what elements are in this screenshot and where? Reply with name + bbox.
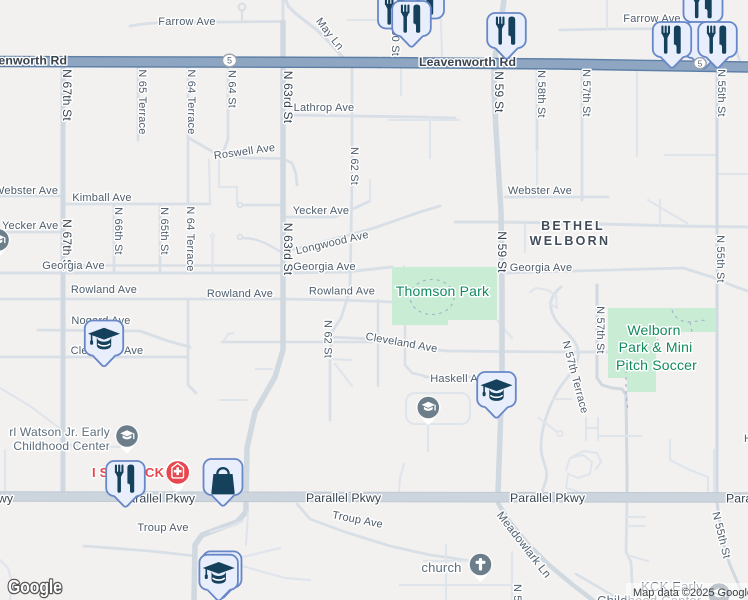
- svg-text:Georgia Ave: Georgia Ave: [42, 260, 105, 272]
- svg-text:5: 5: [698, 58, 703, 68]
- svg-text:Pitch Soccer: Pitch Soccer: [616, 357, 697, 373]
- svg-text:N 65th St: N 65th St: [158, 207, 170, 255]
- svg-text:N 55th St: N 55th St: [714, 235, 726, 283]
- svg-text:church: church: [421, 560, 461, 575]
- svg-text:WELBORN: WELBORN: [530, 234, 611, 248]
- svg-text:Kimball Ave: Kimball Ave: [72, 192, 131, 204]
- svg-text:Webster Ave: Webster Ave: [0, 185, 58, 197]
- svg-text:N 64 Terrace: N 64 Terrace: [184, 206, 196, 271]
- svg-text:N 58th St: N 58th St: [535, 70, 547, 118]
- svg-text:N 58: N 58: [511, 584, 523, 600]
- svg-text:Map data ©2025 Google: Map data ©2025 Google: [633, 587, 748, 599]
- svg-text:N 66th St: N 66th St: [112, 207, 124, 255]
- svg-text:N 64 Terrace: N 64 Terrace: [185, 69, 197, 134]
- svg-text:N 65 Terrace: N 65 Terrace: [136, 69, 148, 134]
- svg-text:Yecker Ave: Yecker Ave: [2, 220, 58, 232]
- svg-text:Parallel Pkwy: Parallel Pkwy: [510, 491, 586, 505]
- svg-text:Parallel Pkwy: Parallel Pkwy: [306, 491, 382, 505]
- svg-text:N 55th St: N 55th St: [715, 69, 727, 117]
- svg-text:Rowland Ave: Rowland Ave: [309, 286, 375, 298]
- svg-text:N 59 St: N 59 St: [495, 231, 509, 273]
- svg-text:Troup Ave: Troup Ave: [137, 522, 188, 534]
- svg-text:Rowland Ave: Rowland Ave: [71, 284, 137, 296]
- svg-text:rl Watson Jr. Early: rl Watson Jr. Early: [9, 425, 110, 439]
- svg-text:N 57th St: N 57th St: [580, 69, 592, 117]
- svg-text:Parallel Pkwy: Parallel Pkwy: [0, 492, 14, 506]
- svg-text:N 63rd St: N 63rd St: [281, 71, 295, 124]
- svg-text:BETHEL: BETHEL: [541, 219, 605, 233]
- svg-text:5: 5: [227, 56, 232, 66]
- svg-text:Georgia Ave: Georgia Ave: [510, 262, 573, 274]
- svg-text:Yecker Ave: Yecker Ave: [293, 205, 349, 217]
- svg-text:Leavenworth Rd: Leavenworth Rd: [419, 55, 516, 69]
- svg-text:Parallel Pkwy: Parallel Pkwy: [726, 492, 748, 506]
- svg-text:N 64 St: N 64 St: [226, 70, 238, 108]
- svg-text:Georgia Ave: Georgia Ave: [293, 261, 356, 273]
- svg-text:N 62 St: N 62 St: [348, 147, 360, 185]
- svg-text:CK: CK: [145, 465, 165, 480]
- svg-text:Park & Mini: Park & Mini: [619, 339, 693, 355]
- svg-text:N 57th St: N 57th St: [594, 306, 606, 354]
- svg-text:Welborn: Welborn: [627, 322, 680, 338]
- svg-text:Webster Ave: Webster Ave: [508, 185, 572, 197]
- svg-text:N 67th St: N 67th St: [60, 69, 74, 121]
- svg-text:Google: Google: [8, 577, 62, 597]
- svg-text:Childhood Center: Childhood Center: [13, 439, 110, 453]
- svg-text:Farrow Ave: Farrow Ave: [158, 16, 215, 28]
- svg-text:Rowland Ave: Rowland Ave: [207, 288, 273, 300]
- svg-text:N 59 St: N 59 St: [492, 71, 506, 113]
- svg-text:Leavenworth Rd: Leavenworth Rd: [0, 54, 67, 68]
- svg-text:Lathrop Ave: Lathrop Ave: [294, 102, 355, 114]
- svg-text:N 62 St: N 62 St: [322, 320, 334, 358]
- svg-text:Thomson Park: Thomson Park: [396, 283, 490, 299]
- svg-text:Haskell Ave: Haskell Ave: [744, 433, 748, 445]
